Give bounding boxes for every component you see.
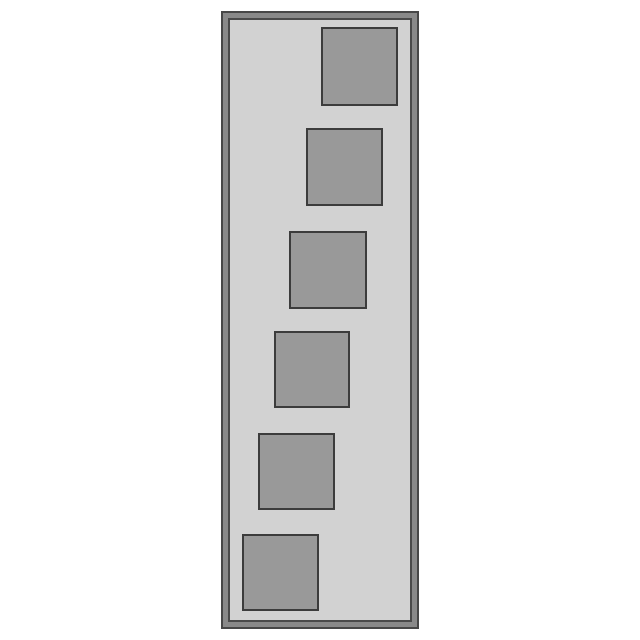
block-square-6 xyxy=(242,534,319,611)
block-square-5 xyxy=(258,433,335,510)
block-square-4 xyxy=(274,331,350,408)
block-square-3 xyxy=(289,231,367,309)
block-square-2 xyxy=(306,128,383,206)
blocks-layer xyxy=(0,0,640,640)
block-square-1 xyxy=(321,27,398,106)
stage xyxy=(0,0,640,640)
